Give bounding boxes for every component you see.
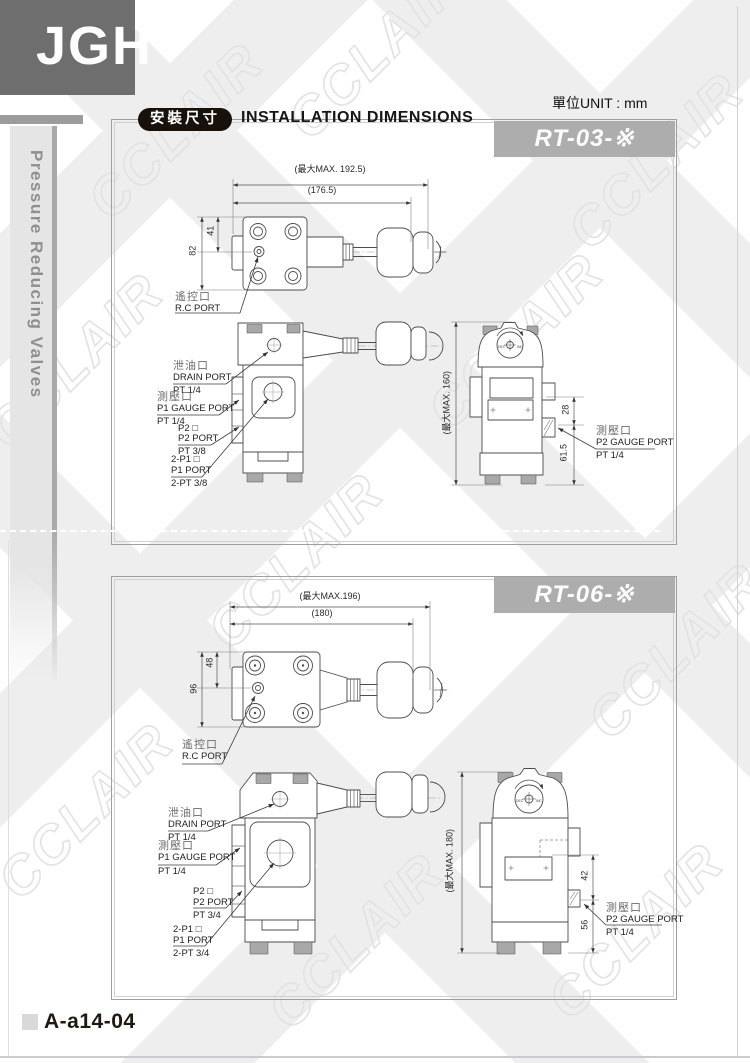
page-bottom-rule bbox=[0, 1056, 750, 1058]
dim-label: (最大MAX. 180) bbox=[445, 821, 454, 901]
catalog-page: CCLAIR CCLAIR CCLAIR CCLAIR CCLAIR CCLAI… bbox=[0, 0, 750, 1063]
port-label-zh: 泄油口 bbox=[173, 361, 209, 373]
dim-label: 48 bbox=[205, 652, 214, 674]
port-label-en: P2 □ bbox=[193, 887, 213, 897]
section-tag-zh: 安裝尺寸 bbox=[138, 108, 232, 131]
port-label-en: R.C PORT bbox=[182, 752, 227, 762]
port-label-en: R.C PORT bbox=[175, 304, 220, 314]
port-label-en: DRAIN PORT bbox=[168, 820, 226, 830]
dim-label: 61.5 bbox=[559, 439, 568, 467]
port-label-zh: 測壓口 bbox=[606, 903, 642, 915]
port-label-en: P1 GAUGE PORT bbox=[157, 404, 234, 414]
sidebar-bar-edge bbox=[52, 126, 57, 686]
port-label-en: P2 PORT bbox=[178, 434, 218, 444]
port-label-zh: 測壓口 bbox=[596, 426, 632, 438]
dim-label: (最大MAX. 160) bbox=[442, 363, 451, 443]
dim-label: 42 bbox=[580, 865, 589, 887]
port-label-en: P2 GAUGE PORT bbox=[596, 438, 673, 448]
port-size-label: 2-PT 3/8 bbox=[171, 479, 207, 489]
port-size-label: 2-PT 3/4 bbox=[173, 949, 209, 959]
port-label-en: P2 PORT bbox=[193, 898, 233, 908]
port-size-label: PT 1/4 bbox=[606, 928, 634, 938]
port-label-zh: 遙控口 bbox=[182, 740, 218, 752]
unit-label: 單位UNIT : mm bbox=[552, 93, 647, 113]
port-label-en: 2-P1 □ bbox=[173, 925, 201, 935]
section-title: INSTALLATION DIMENSIONS bbox=[241, 109, 473, 127]
page-right-rule bbox=[737, 6, 738, 1056]
dim-label: (最大MAX. 192.5) bbox=[260, 165, 400, 174]
dim-label: 82 bbox=[188, 240, 197, 262]
port-label-en: P1 PORT bbox=[173, 936, 213, 946]
sidebar-category-title: Pressure Reducing Valves bbox=[26, 150, 46, 480]
dim-label: (最大MAX.196) bbox=[260, 592, 400, 601]
port-size-label: PT 3/4 bbox=[193, 911, 221, 921]
dim-label: 41 bbox=[206, 220, 215, 242]
port-label-en: 2-P1 □ bbox=[171, 455, 199, 465]
port-label-en: DRAIN PORT bbox=[173, 373, 231, 383]
dim-label: 56 bbox=[580, 914, 589, 936]
port-label-zh: 泄油口 bbox=[168, 808, 204, 820]
dim-label: (180) bbox=[272, 609, 372, 618]
cut-mark-dashed-line bbox=[0, 530, 660, 532]
port-size-label: PT 1/4 bbox=[596, 451, 624, 461]
sidebar-top-bar bbox=[0, 115, 83, 124]
port-label-zh: 測壓口 bbox=[157, 392, 193, 404]
company-logo: JGH bbox=[0, 0, 135, 95]
model-banner-rt06: RT-06-※ bbox=[494, 577, 675, 613]
dim-label: (176.5) bbox=[272, 186, 372, 195]
document-code: A-a14-04 bbox=[44, 1010, 136, 1034]
port-size-label: PT 1/4 bbox=[158, 867, 186, 877]
dim-label: 96 bbox=[189, 678, 198, 700]
footer-bullet-square bbox=[22, 1014, 38, 1030]
port-label-zh: 遙控口 bbox=[175, 292, 211, 304]
model-banner-rt03: RT-03-※ bbox=[494, 121, 675, 157]
port-label-en: P1 GAUGE PORT bbox=[158, 853, 235, 863]
page-left-rule bbox=[8, 540, 9, 1056]
dim-label: 28 bbox=[561, 399, 570, 421]
port-label-zh: 測壓口 bbox=[158, 841, 194, 853]
port-label-en: P2 GAUGE PORT bbox=[606, 915, 683, 925]
port-label-en: P1 PORT bbox=[171, 466, 211, 476]
